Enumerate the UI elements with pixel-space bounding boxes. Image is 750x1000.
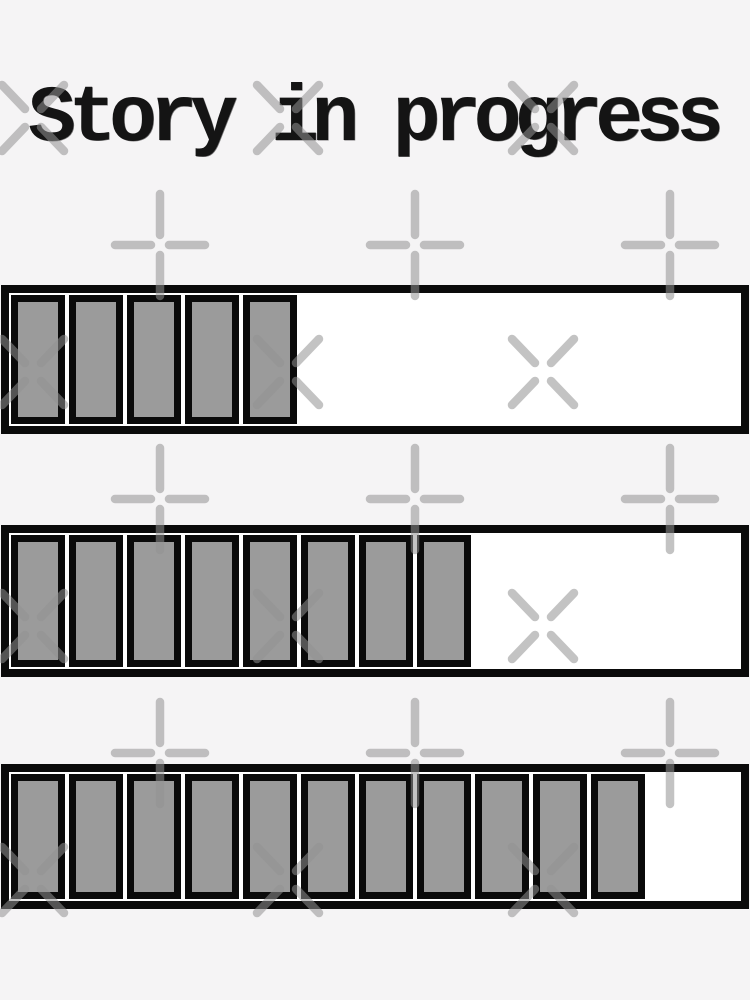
progress-bar <box>1 525 749 677</box>
progress-segment <box>69 535 123 667</box>
progress-segment <box>11 535 65 667</box>
plus-watermark-icon <box>115 194 205 296</box>
progress-segment <box>475 774 529 899</box>
sticker-canvas: Story in progress <box>0 0 750 1000</box>
progress-segment <box>359 774 413 899</box>
progress-segment <box>69 295 123 424</box>
progress-segment <box>243 295 297 424</box>
plus-watermark-icon <box>370 194 460 296</box>
progress-segment <box>243 535 297 667</box>
progress-segment <box>127 774 181 899</box>
progress-segment <box>69 774 123 899</box>
progress-segment <box>11 774 65 899</box>
progress-segment <box>301 535 355 667</box>
progress-segment <box>127 535 181 667</box>
progress-segment <box>185 535 239 667</box>
progress-segment <box>533 774 587 899</box>
progress-segment <box>243 774 297 899</box>
page-title: Story in progress <box>28 80 717 160</box>
progress-segment <box>301 774 355 899</box>
progress-segment <box>417 535 471 667</box>
progress-bar <box>1 764 749 909</box>
progress-segment <box>359 535 413 667</box>
progress-segment <box>185 295 239 424</box>
plus-watermark-icon <box>625 194 715 296</box>
progress-segment <box>417 774 471 899</box>
progress-segment <box>591 774 645 899</box>
progress-segment <box>127 295 181 424</box>
progress-segment <box>11 295 65 424</box>
progress-bar <box>1 285 749 434</box>
progress-segment <box>185 774 239 899</box>
